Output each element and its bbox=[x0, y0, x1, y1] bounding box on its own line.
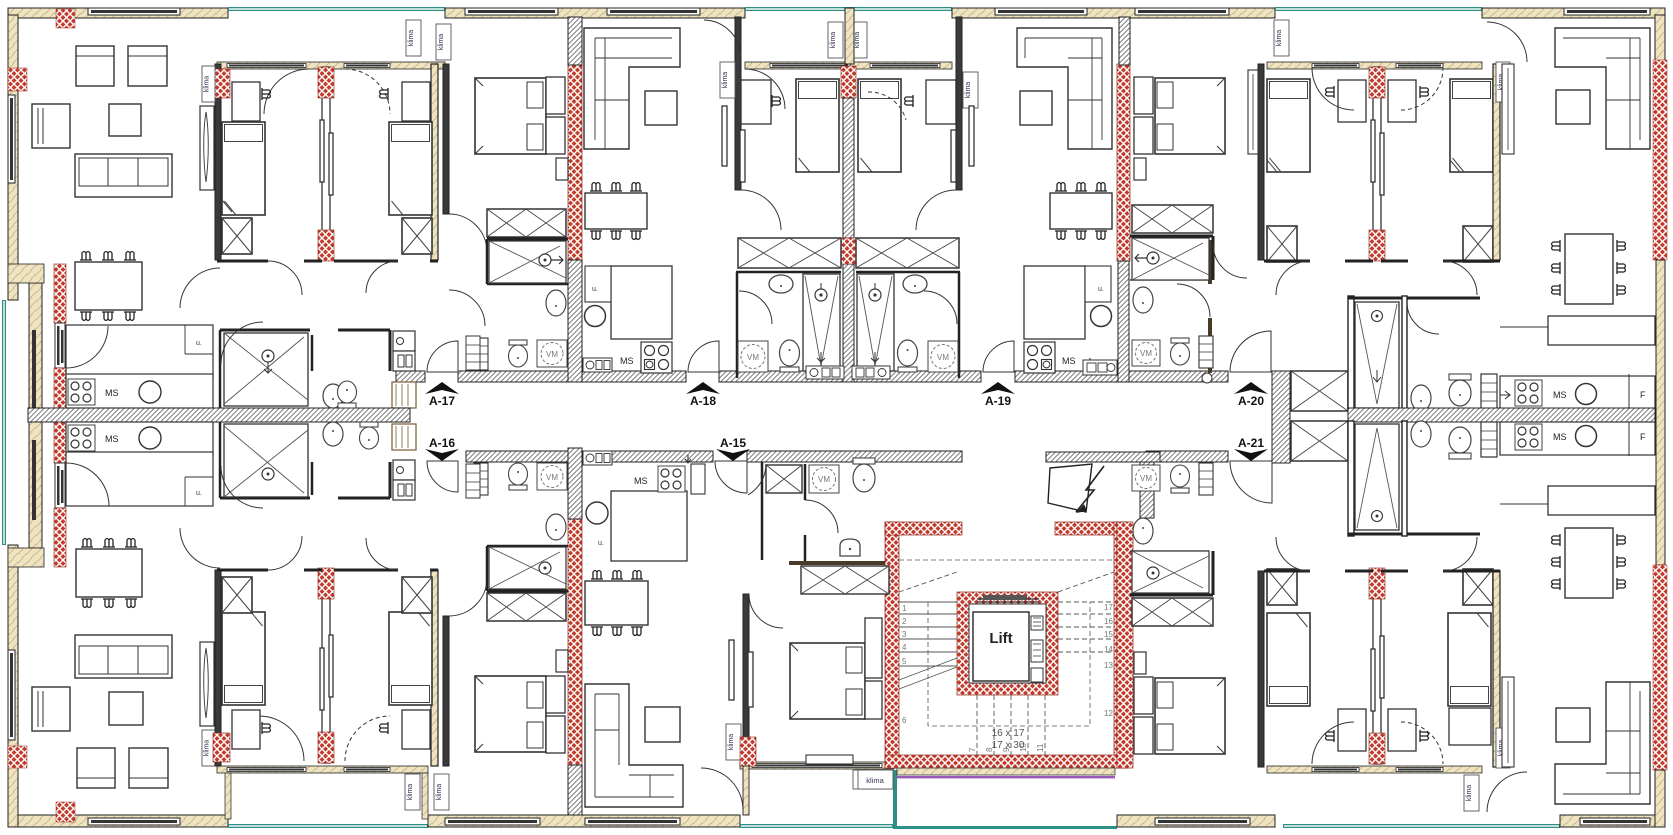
svg-text:16 x 17: 16 x 17 bbox=[992, 728, 1025, 739]
svg-text:MS: MS bbox=[620, 356, 634, 366]
svg-text:7: 7 bbox=[968, 747, 977, 752]
svg-text:17: 17 bbox=[1104, 603, 1113, 612]
svg-text:12: 12 bbox=[1104, 709, 1113, 718]
svg-text:1: 1 bbox=[902, 604, 907, 613]
svg-text:2: 2 bbox=[902, 617, 907, 626]
svg-text:A-17: A-17 bbox=[429, 394, 455, 408]
svg-text:14: 14 bbox=[1104, 645, 1113, 654]
svg-text:A-16: A-16 bbox=[429, 436, 455, 450]
svg-text:klima: klima bbox=[204, 76, 211, 92]
svg-text:A-19: A-19 bbox=[985, 394, 1011, 408]
svg-text:MS: MS bbox=[1062, 356, 1076, 366]
svg-text:MS: MS bbox=[634, 476, 648, 486]
svg-text:klima: klima bbox=[866, 776, 884, 785]
svg-text:VM: VM bbox=[546, 350, 558, 359]
svg-text:5: 5 bbox=[902, 657, 907, 666]
svg-text:F: F bbox=[1640, 390, 1646, 400]
svg-text:u.: u. bbox=[196, 490, 202, 497]
svg-text:MS: MS bbox=[105, 434, 119, 444]
svg-text:3: 3 bbox=[902, 630, 907, 639]
svg-text:klima: klima bbox=[204, 740, 211, 756]
svg-text:MS: MS bbox=[1553, 390, 1567, 400]
svg-text:VM: VM bbox=[818, 475, 830, 484]
svg-text:A-21: A-21 bbox=[1238, 436, 1264, 450]
svg-text:A-20: A-20 bbox=[1238, 394, 1264, 408]
svg-text:VM: VM bbox=[937, 353, 949, 362]
svg-text:A-18: A-18 bbox=[690, 394, 716, 408]
svg-text:Lift: Lift bbox=[989, 630, 1012, 647]
svg-text:u.: u. bbox=[196, 340, 202, 347]
svg-text:4: 4 bbox=[902, 643, 907, 652]
svg-text:A-15: A-15 bbox=[720, 436, 746, 450]
svg-text:F: F bbox=[1640, 432, 1646, 442]
svg-text:u.: u. bbox=[592, 286, 598, 293]
svg-text:11: 11 bbox=[1036, 743, 1045, 752]
svg-text:16: 16 bbox=[1104, 617, 1113, 626]
svg-text:VM: VM bbox=[1140, 349, 1152, 358]
svg-text:MS: MS bbox=[1553, 432, 1567, 442]
svg-text:VM: VM bbox=[1140, 474, 1152, 483]
svg-text:13: 13 bbox=[1104, 661, 1113, 670]
svg-text:MS: MS bbox=[105, 388, 119, 398]
svg-text:VM: VM bbox=[747, 353, 759, 362]
svg-text:15: 15 bbox=[1104, 630, 1113, 639]
svg-text:VM: VM bbox=[546, 473, 558, 482]
svg-text:17 x 30: 17 x 30 bbox=[992, 740, 1025, 751]
svg-text:6: 6 bbox=[902, 716, 907, 725]
svg-text:u.: u. bbox=[598, 540, 604, 547]
svg-text:u.: u. bbox=[1098, 286, 1104, 293]
